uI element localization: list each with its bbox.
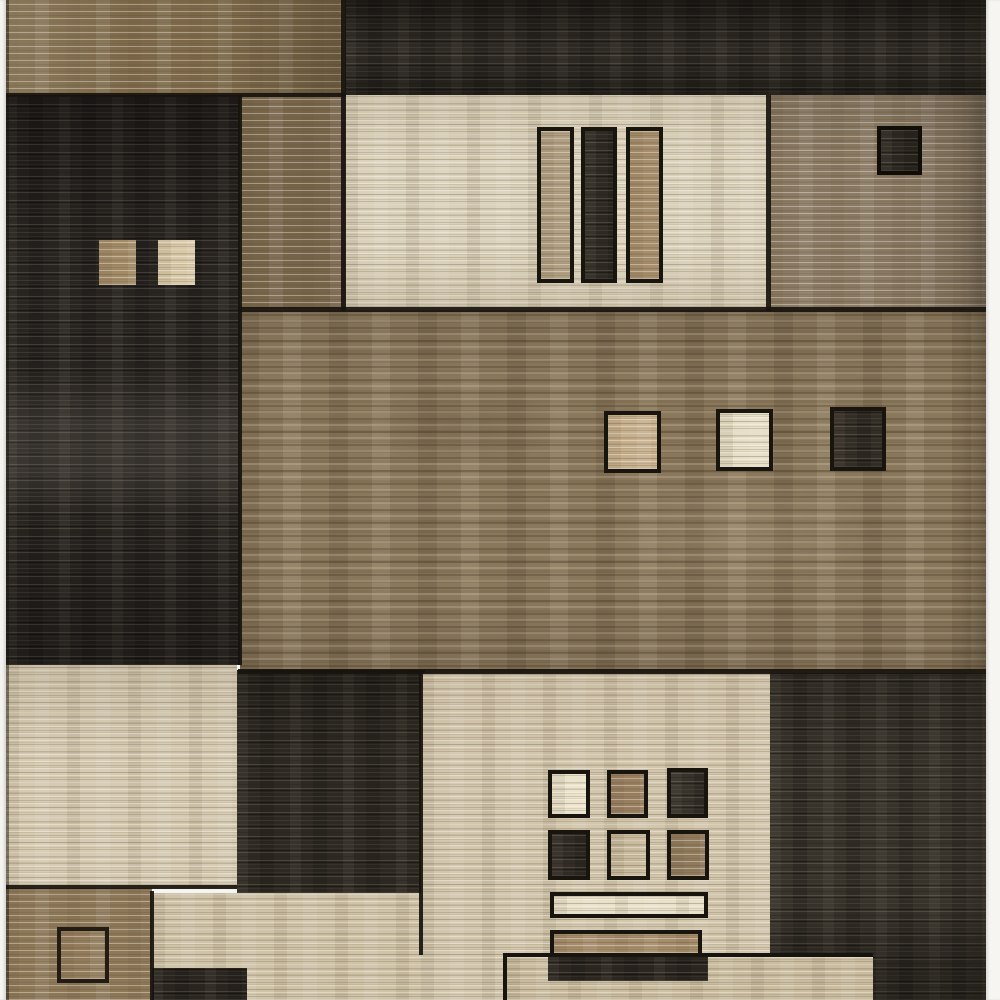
rug-left-edge-line xyxy=(6,0,9,1000)
seam-line xyxy=(6,93,345,97)
accent-square-tan xyxy=(99,240,136,285)
accent-bar-tan xyxy=(537,127,574,283)
block-top-left-brown xyxy=(6,0,345,96)
accent-square-dark xyxy=(830,407,886,471)
block-mid-top-brown xyxy=(240,95,345,310)
accent-bar-tan xyxy=(626,127,663,283)
seam-line xyxy=(341,95,346,311)
block-bottom-left-cream xyxy=(6,665,237,888)
block-left-dark xyxy=(6,95,240,665)
accent-hbar-tan xyxy=(550,930,702,957)
seam-line xyxy=(238,95,242,665)
accent-grid-square-brown xyxy=(667,830,709,880)
accent-square-tan xyxy=(604,411,661,473)
accent-grid-square-dark xyxy=(667,768,708,818)
accent-square-beige xyxy=(158,240,195,285)
block-bottom-dark-rect xyxy=(152,968,247,1000)
accent-grid-square-brown xyxy=(607,770,648,818)
seam-line xyxy=(341,0,346,96)
accent-hbar-cream xyxy=(550,892,708,918)
accent-square-brown xyxy=(57,927,109,983)
seam-line xyxy=(238,307,986,312)
accent-bar-dark xyxy=(581,127,617,283)
accent-hbar-dark xyxy=(548,957,708,981)
accent-square-dark xyxy=(877,126,922,175)
photo-backdrop-right-edge xyxy=(986,0,1000,1000)
block-top-dark-strip xyxy=(345,0,986,96)
block-bottom-right-dark xyxy=(770,673,986,1000)
block-bottom-mid-dark xyxy=(237,670,425,893)
seam-line xyxy=(150,891,154,1000)
block-center-brown-field xyxy=(240,310,986,673)
photo-backdrop-left-edge xyxy=(0,0,6,1000)
seam-line xyxy=(766,95,771,311)
seam-line xyxy=(419,673,423,955)
rug-product-photo xyxy=(0,0,1000,1000)
accent-grid-square-beige xyxy=(607,830,650,880)
accent-square-cream xyxy=(716,409,773,471)
seam-line xyxy=(238,669,986,674)
accent-grid-square-dark xyxy=(548,830,590,880)
accent-grid-square-cream xyxy=(548,770,590,818)
seam-line xyxy=(6,885,237,889)
